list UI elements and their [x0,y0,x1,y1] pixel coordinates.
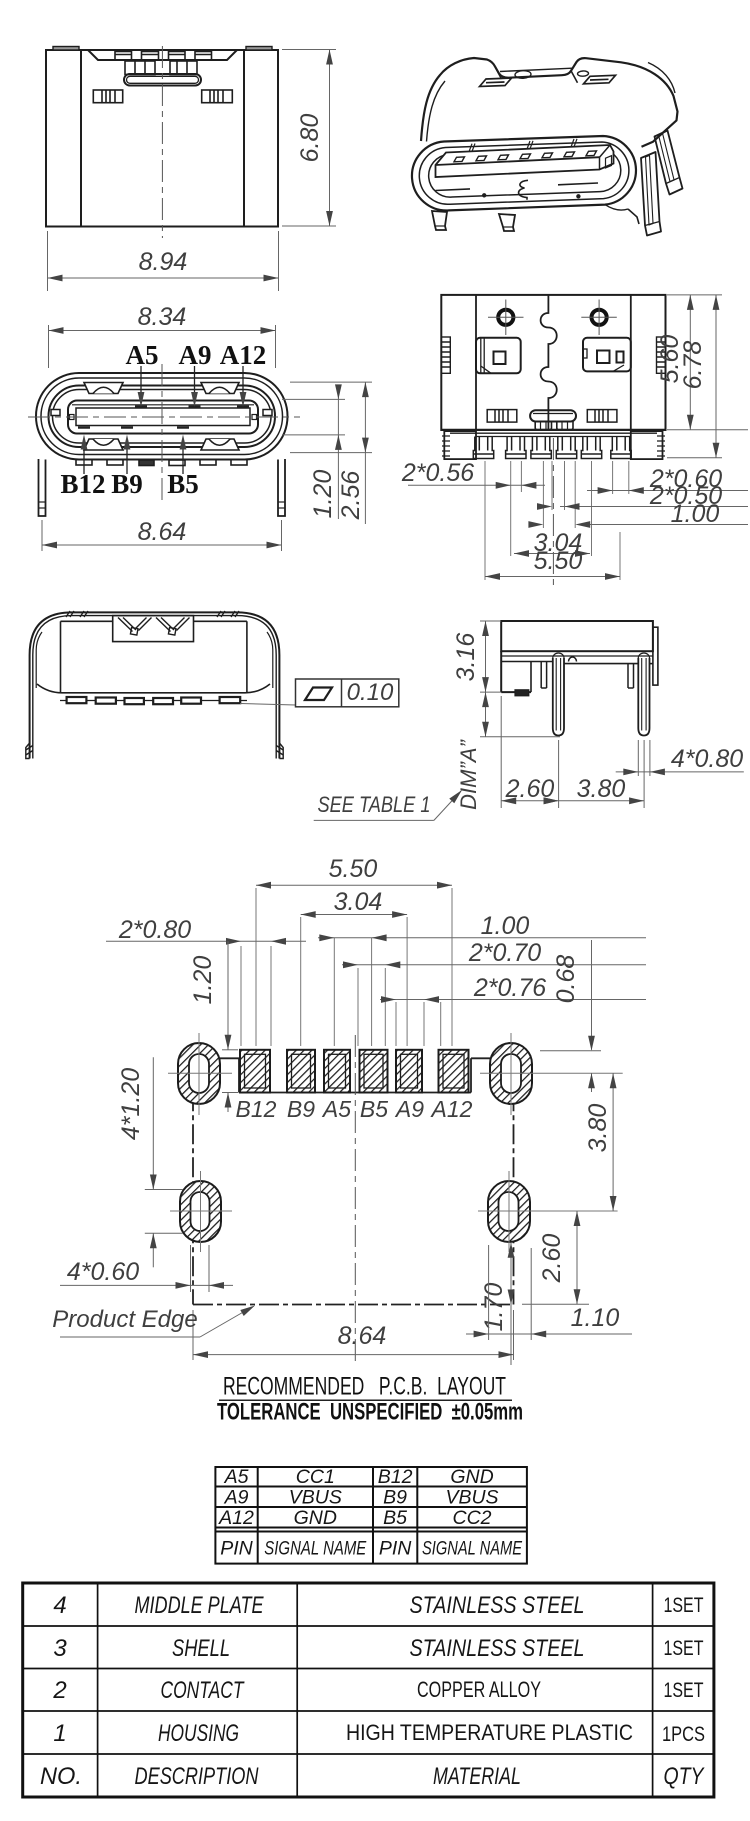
svg-text:2*0.76: 2*0.76 [473,974,546,1002]
svg-text:DIM”A”: DIM”A” [456,739,481,810]
svg-text:CC2: CC2 [452,1507,491,1529]
svg-text:2: 2 [52,1677,66,1704]
svg-text:2.56: 2.56 [337,471,365,521]
svg-text:0.68: 0.68 [552,955,580,1004]
svg-text:3: 3 [53,1635,67,1662]
svg-text:VBUS: VBUS [289,1487,342,1509]
svg-text:6.80: 6.80 [296,114,324,163]
svg-text:COPPER ALLOY: COPPER ALLOY [417,1677,541,1702]
svg-text:1: 1 [53,1720,66,1747]
svg-text:GND: GND [294,1507,337,1529]
svg-text:1.10: 1.10 [571,1304,620,1332]
svg-text:5.50: 5.50 [534,547,583,575]
svg-text:SIGNAL NAME: SIGNAL NAME [422,1538,523,1560]
svg-text:GND: GND [450,1466,493,1488]
svg-text:1SET: 1SET [664,1637,704,1660]
svg-text:A9: A9 [224,1487,249,1509]
svg-text:3.16: 3.16 [452,633,480,682]
svg-text:B9: B9 [287,1096,315,1122]
svg-text:2*0.56: 2*0.56 [401,459,474,487]
svg-text:6.78: 6.78 [679,341,707,390]
svg-text:DESCRIPTION: DESCRIPTION [135,1763,260,1790]
svg-text:A12: A12 [220,340,267,370]
svg-text:B9: B9 [383,1487,407,1509]
svg-text:B12: B12 [378,1466,413,1488]
svg-text:A9: A9 [179,340,212,370]
svg-text:8.34: 8.34 [138,303,187,331]
svg-text:3.80: 3.80 [584,1104,612,1153]
svg-text:2*0.80: 2*0.80 [118,916,191,944]
svg-text:1SET: 1SET [664,1594,704,1617]
svg-text:4*1.20: 4*1.20 [117,1068,145,1140]
svg-text:4*0.80: 4*0.80 [671,745,743,773]
svg-text:SIGNAL NAME: SIGNAL NAME [264,1538,367,1560]
svg-text:HOUSING: HOUSING [158,1720,239,1747]
svg-text:MIDDLE PLATE: MIDDLE PLATE [135,1592,265,1619]
svg-text:1.70: 1.70 [480,1283,508,1332]
svg-text:B5: B5 [360,1096,388,1122]
svg-text:PIN: PIN [220,1538,253,1560]
svg-text:A12: A12 [218,1507,254,1529]
svg-text:SHELL: SHELL [172,1635,230,1662]
svg-text:RECOMMENDED P.C.B. LAYOUT: RECOMMENDED P.C.B. LAYOUT [223,1372,506,1400]
svg-text:VBUS: VBUS [445,1487,498,1509]
svg-text:4*0.60: 4*0.60 [67,1258,139,1286]
svg-text:3.04: 3.04 [334,888,383,916]
svg-text:STAINLESS STEEL: STAINLESS STEEL [410,1592,585,1619]
svg-text:8.94: 8.94 [139,248,188,276]
svg-text:8.64: 8.64 [138,518,187,546]
svg-text:CC1: CC1 [296,1466,335,1488]
svg-text:4: 4 [53,1592,66,1619]
svg-text:2*0.70: 2*0.70 [468,939,541,967]
svg-text:TOLERANCE UNSPECIFIED ±0.05m: TOLERANCE UNSPECIFIED ±0.05mm [217,1399,523,1426]
svg-text:HIGH TEMPERATURE PLASTIC: HIGH TEMPERATURE PLASTIC [346,1720,633,1745]
svg-text:3.80: 3.80 [577,775,626,803]
svg-text:NO.: NO. [40,1763,82,1790]
svg-text:A9: A9 [394,1096,424,1122]
svg-text:SEE TABLE 1: SEE TABLE 1 [318,792,431,817]
svg-text:PIN: PIN [379,1538,412,1560]
svg-text:1PCS: 1PCS [662,1723,705,1746]
svg-text:A12: A12 [430,1096,473,1122]
svg-text:B12: B12 [236,1096,277,1122]
svg-text:5.50: 5.50 [329,855,378,883]
svg-text:STAINLESS STEEL: STAINLESS STEEL [410,1635,585,1662]
svg-text:2.60: 2.60 [538,1234,566,1284]
svg-text:1.00: 1.00 [481,912,530,940]
svg-text:0.10: 0.10 [347,679,394,706]
svg-text:8.64: 8.64 [338,1322,387,1350]
svg-text:A5: A5 [224,1466,249,1488]
svg-text:A5: A5 [321,1096,351,1122]
svg-text:QTY: QTY [664,1763,706,1790]
svg-text:MATERIAL: MATERIAL [433,1763,521,1790]
svg-text:A5: A5 [126,340,159,370]
svg-text:Product Edge: Product Edge [52,1306,197,1333]
svg-text:1.20: 1.20 [309,470,337,519]
svg-text:1SET: 1SET [664,1679,704,1702]
svg-text:1.00: 1.00 [671,500,720,528]
svg-text:B12: B12 [60,469,105,499]
svg-text:1.20: 1.20 [189,956,217,1005]
svg-text:CONTACT: CONTACT [161,1677,246,1704]
svg-text:B5: B5 [383,1507,407,1529]
